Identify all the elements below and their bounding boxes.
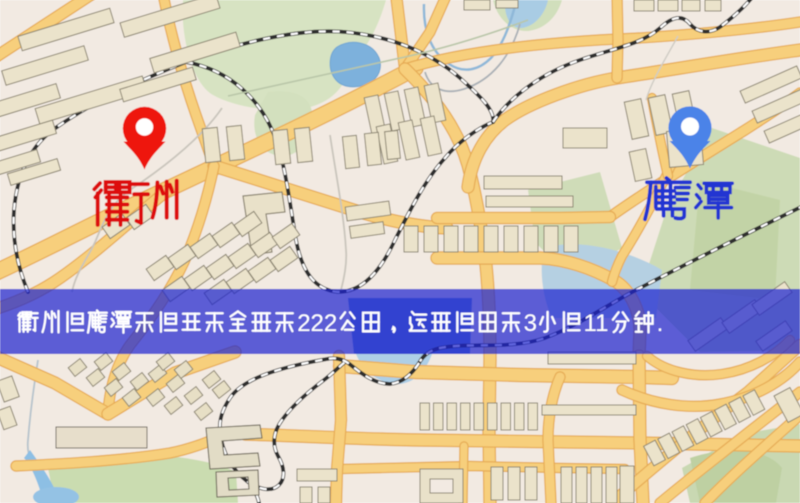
svg-text:11: 11 xyxy=(584,310,609,337)
svg-text:3: 3 xyxy=(524,310,537,337)
svg-text:222: 222 xyxy=(297,310,337,337)
svg-text:.: . xyxy=(657,310,664,337)
